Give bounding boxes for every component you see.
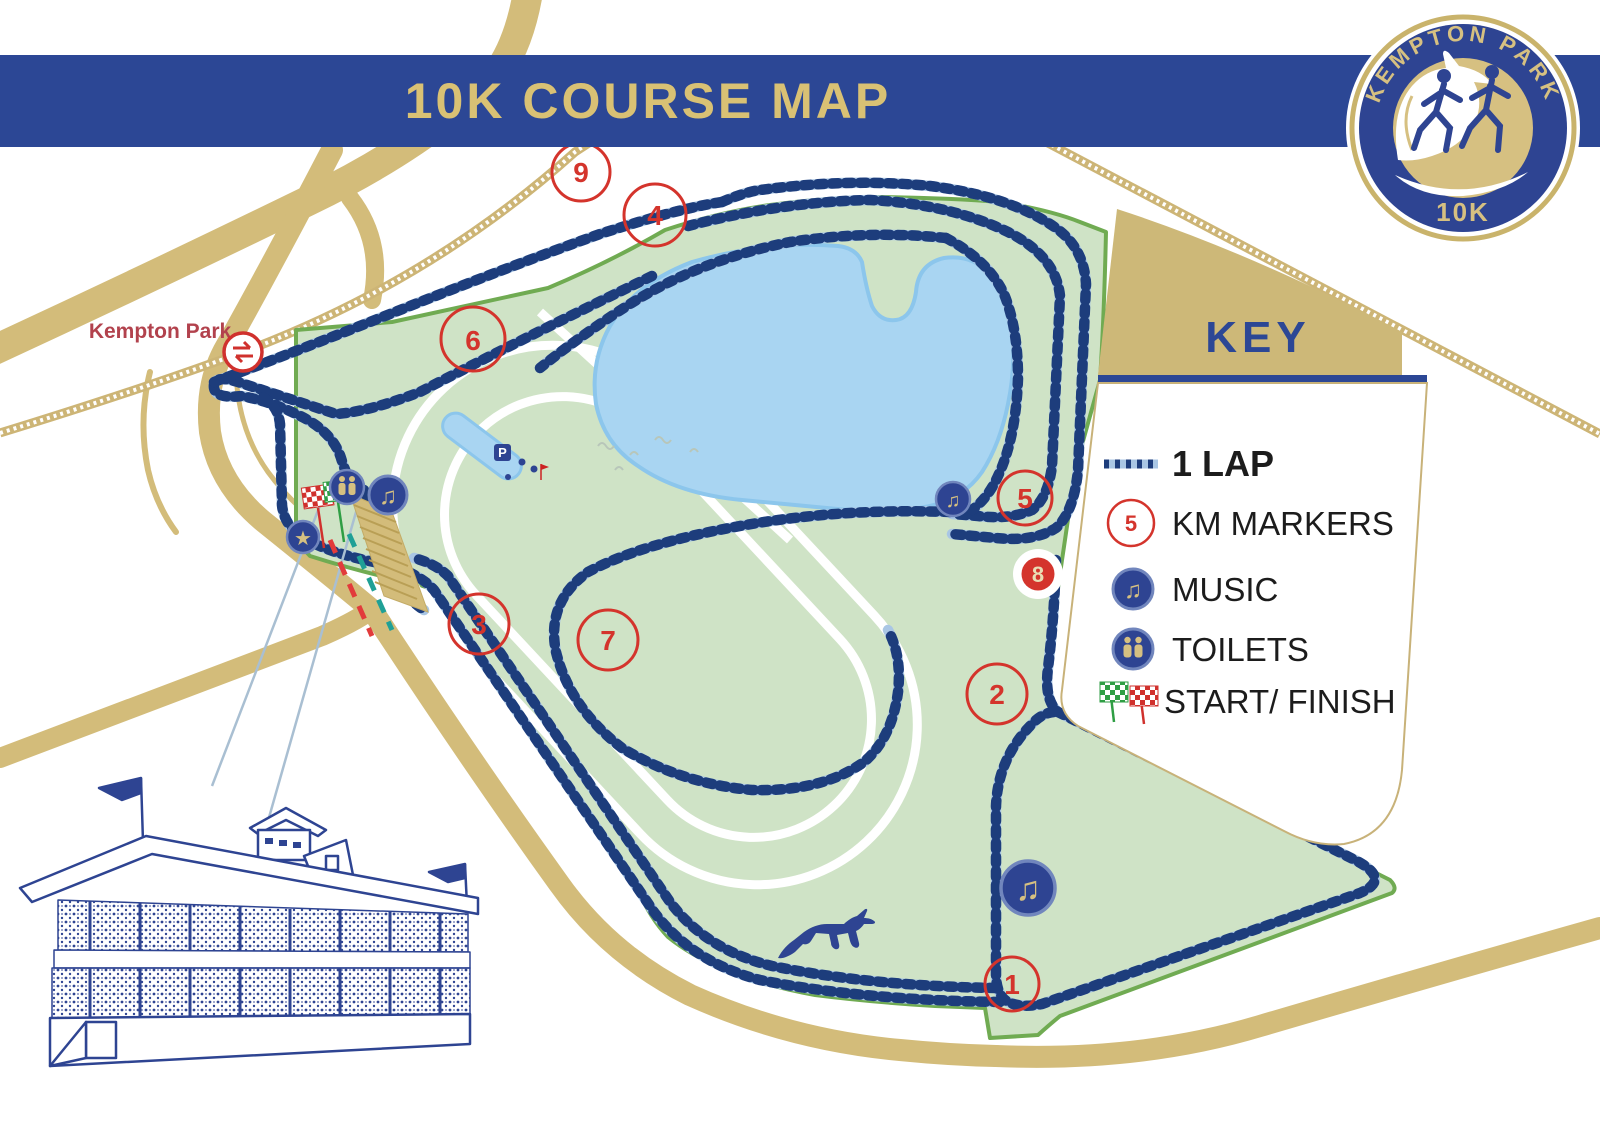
toilets-icon xyxy=(330,470,364,504)
music-icon-start: ♫ xyxy=(369,476,407,514)
legend-item-start: START/ FINISH xyxy=(1100,682,1396,724)
course-map-svg: P xyxy=(0,0,1600,1127)
svg-text:2: 2 xyxy=(989,679,1005,710)
music-icon-lake: ♫ xyxy=(936,482,970,516)
road-west-branch xyxy=(0,612,368,758)
svg-text:♫: ♫ xyxy=(1015,870,1041,908)
svg-text:1: 1 xyxy=(1004,969,1020,1000)
svg-text:8: 8 xyxy=(1032,562,1044,587)
legend-lap-label: 1 LAP xyxy=(1172,443,1274,484)
svg-text:5: 5 xyxy=(1017,483,1033,514)
svg-text:4: 4 xyxy=(647,200,663,231)
legend-start-label: START/ FINISH xyxy=(1164,683,1396,720)
key-title: KEY xyxy=(1205,313,1310,362)
national-rail-icon xyxy=(224,333,262,371)
svg-text:7: 7 xyxy=(600,625,616,656)
course-map-page: P xyxy=(0,0,1600,1127)
svg-text:3: 3 xyxy=(471,609,487,640)
km-marker-8: 8 xyxy=(1013,549,1063,599)
logo-event-text: 10K xyxy=(1436,197,1490,227)
svg-text:♫: ♫ xyxy=(1124,577,1142,604)
legend-toilets-label: TOILETS xyxy=(1172,631,1309,668)
svg-text:9: 9 xyxy=(573,157,589,188)
svg-text:♫: ♫ xyxy=(379,483,397,510)
star-icon: ★ xyxy=(287,521,319,553)
legend-music-label: MUSIC xyxy=(1172,571,1278,608)
page-title: 10K COURSE MAP xyxy=(405,73,892,129)
road-slip-1 xyxy=(143,372,176,532)
legend-item-music: ♫ MUSIC xyxy=(1113,569,1278,609)
svg-text:6: 6 xyxy=(465,325,481,356)
event-logo: KEMPTON PARK 10K xyxy=(1346,11,1580,245)
legend-km-label: KM MARKERS xyxy=(1172,505,1394,542)
music-icon-south: ♫ xyxy=(1001,861,1055,915)
road-fork-branch xyxy=(350,198,375,300)
station-label: Kempton Park xyxy=(89,320,232,343)
legend-km-sample: 5 xyxy=(1125,511,1137,536)
legend-item-toilets: TOILETS xyxy=(1113,629,1309,669)
svg-text:♫: ♫ xyxy=(946,490,961,512)
parking-label: P xyxy=(498,445,507,460)
svg-text:★: ★ xyxy=(294,528,312,550)
grandstand-illustration xyxy=(20,778,478,1066)
